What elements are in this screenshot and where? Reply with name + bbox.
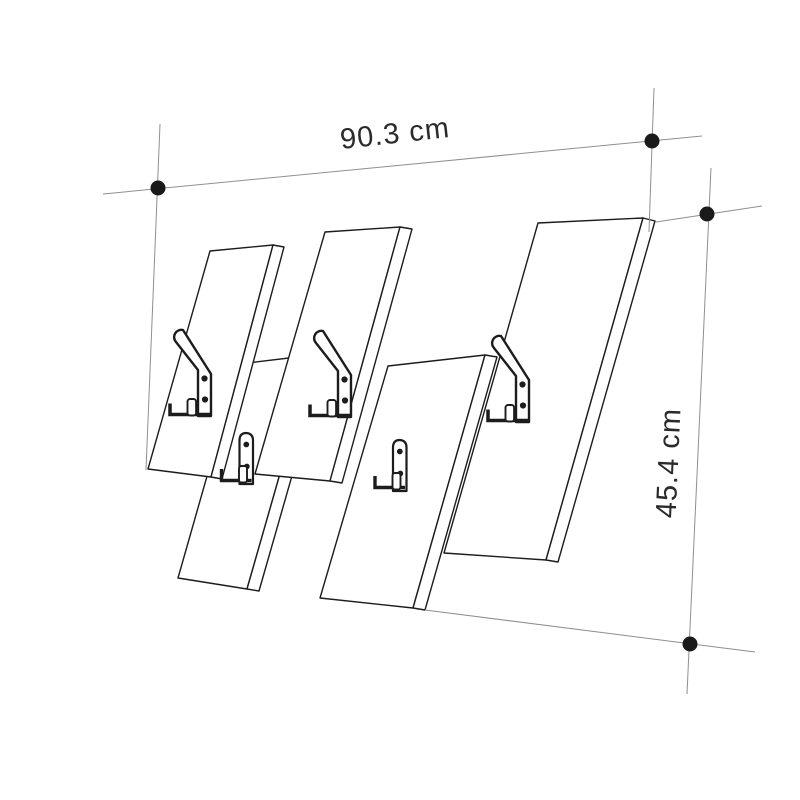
height-extension-line-bottom bbox=[425, 610, 755, 652]
width-extension-line-left bbox=[146, 124, 160, 470]
height-dimension-line bbox=[687, 168, 711, 694]
width-extension-line-right bbox=[649, 88, 654, 232]
coat-rack-dimension-diagram: 90.3 cm 45.4 cm bbox=[0, 0, 800, 800]
dimension-endpoint-dot bbox=[683, 637, 698, 652]
diagram-canvas: 90.3 cm 45.4 cm bbox=[0, 0, 800, 800]
dimension-endpoint-dot bbox=[700, 207, 715, 222]
dimension-endpoint-dot bbox=[151, 181, 166, 196]
height-dimension-label: 45.4 cm bbox=[651, 407, 688, 519]
width-dimension-label: 90.3 cm bbox=[338, 112, 451, 156]
dimension-endpoint-dot bbox=[645, 134, 660, 149]
